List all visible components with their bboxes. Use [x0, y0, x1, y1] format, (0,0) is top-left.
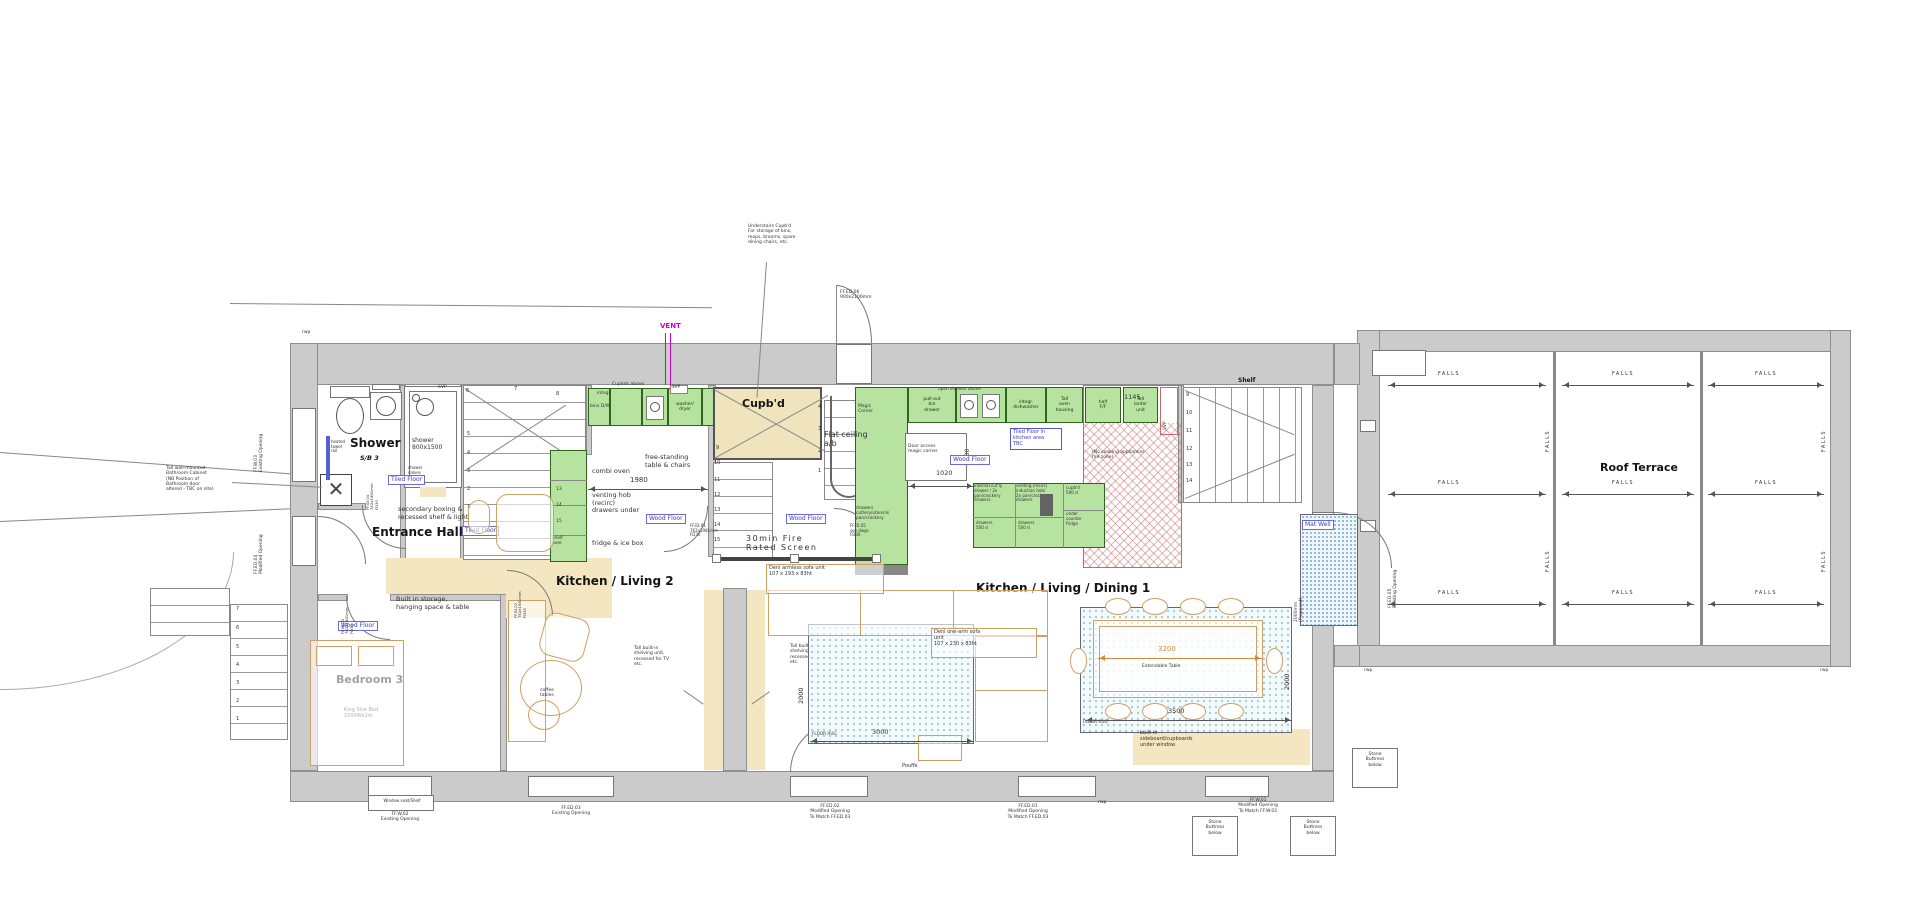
terrace-divider — [1553, 352, 1556, 645]
falls-label-vert: FALLS — [1546, 412, 1552, 452]
secondary-boxing-note: secondary boxing & recessed shelf & ligh… — [398, 506, 510, 521]
fridge-label: fridge & ice box — [592, 540, 643, 548]
tag-ffed04: FF.ED.04 Modified Opening — [254, 482, 265, 574]
stone-buttress-label: Stone Buttress below — [1354, 752, 1396, 768]
venting-hob-label: venting hob (recirc) drawers under — [592, 492, 676, 515]
tiled-floor-kitchen-badge: Tiled Floor in kitchen area TBC — [1010, 428, 1062, 450]
mirror — [372, 384, 400, 390]
stair-num: 6 — [236, 626, 239, 632]
induction-hob — [1040, 494, 1053, 516]
svp-label: SVP — [438, 385, 447, 390]
hall-storage — [386, 558, 506, 594]
stair-num: 2 — [236, 699, 239, 705]
stair-num: 8 — [556, 392, 559, 398]
garden-steps — [150, 588, 230, 636]
porch-line-top — [0, 452, 291, 474]
porch-line-bottom — [0, 508, 292, 522]
pouffe-label: Pouffe — [902, 764, 918, 770]
tag-ffed01: FF.ED.01 Modified Opening To Match FF.ED… — [982, 804, 1074, 820]
stair-num: 12 — [714, 493, 720, 499]
dim-1145: 1145 — [1124, 394, 1141, 402]
cab-kl2-tall — [702, 388, 714, 426]
dim-1020: 1020 — [936, 470, 953, 478]
falls-line — [1562, 494, 1694, 495]
integr-label: integr. — [597, 391, 611, 396]
magic-corner-label: Magic Corner — [858, 404, 888, 415]
wall-bed-right — [500, 594, 507, 771]
tag-ffed06: FF.ED.06 900x2100mm — [840, 290, 900, 301]
room-label-hall: Entrance Hall — [372, 525, 463, 539]
wall-tv-core — [723, 588, 747, 771]
tag-ffid02: FF.ID.02 762x1981mm FD30 — [514, 562, 527, 618]
terrace-post — [1360, 420, 1376, 432]
understairs-note: Understairs Cupb'd For storage of bins, … — [748, 224, 828, 245]
stair-num: 9 — [716, 446, 719, 452]
cab-dishwasher: integr. dishwasher — [1006, 387, 1046, 423]
stair-num: 6 — [466, 389, 469, 395]
island-cutlery-label: internal cut'ly drawer / 2x pan/crockery… — [974, 484, 1014, 503]
free-standing-label: free-standing table & chairs — [645, 454, 717, 469]
island-fridge-label: under counter fridge — [1066, 512, 1102, 526]
k1-sink-bowl — [986, 400, 996, 410]
wood-floor-badge: Wood Floor — [950, 455, 990, 465]
window-bottom-1 — [368, 776, 432, 797]
dining-chair — [1266, 648, 1283, 674]
flat-ceiling-label: Flat ceiling a/b — [824, 430, 884, 449]
dining-table-inner — [1099, 626, 1257, 692]
pillow — [316, 646, 352, 666]
shower-valves-label: shower valves — [408, 466, 440, 475]
screen-post — [712, 554, 721, 563]
wall-terrace-link-bottom — [1334, 645, 1360, 667]
rwp-label: rwp — [1098, 800, 1106, 805]
kl2-table — [496, 494, 554, 552]
sideboard-label: built-in sideboard/cupboards under windo… — [1140, 731, 1250, 749]
dim-line-3200 — [1098, 658, 1262, 659]
east-stair — [1183, 387, 1302, 503]
toilet-bowl — [336, 398, 364, 434]
falls-line — [1562, 604, 1694, 605]
stair-num: 4 — [467, 451, 470, 457]
dining-chair — [1105, 598, 1131, 615]
built-in-storage-note: Built in storage, hanging space & table — [396, 596, 508, 611]
island-cupbd-label: cupb'd 500 d — [1066, 486, 1102, 496]
shelf-label: Shelf — [1238, 377, 1255, 384]
basin-bowl — [376, 396, 396, 416]
tag-ffw03: FF.W.03 Existing Opening — [254, 380, 265, 472]
terrace-wall-left — [1357, 330, 1380, 667]
falls-label-vert: FALLS — [1546, 532, 1552, 572]
dim-1980: 1980 — [630, 476, 648, 484]
stair-num: 5 — [467, 432, 470, 438]
tag-ffw01: FF.W.01 Modified Opening To Match FF.W.0… — [1212, 798, 1304, 814]
window-seat-label: Window seat/Shelf — [372, 799, 432, 804]
dim-2000-proposed: 2000mm (Proposed) — [1294, 530, 1305, 622]
k1-sink-bowl — [964, 400, 974, 410]
drawers-cutlery-label: drawers cutlery/utensils pan/crockery — [856, 506, 906, 521]
door-leaf-ffed06 — [836, 285, 837, 343]
falls-label: FALLS — [1755, 372, 1777, 378]
svp-label: SVP — [672, 385, 680, 390]
one-arm-sofa-label: Deni one-arm sofa unit 107 x 230 x 83ht — [934, 630, 1034, 648]
room-label-shower: Shower — [350, 436, 401, 450]
room-label-cupbd: Cupb'd — [742, 398, 785, 411]
falls-label: FALLS — [1612, 372, 1634, 378]
dim-line-3500 — [1085, 720, 1292, 721]
door-ffed06-gap — [836, 344, 872, 384]
dim-3000: 3000 — [872, 729, 889, 737]
stair-num: 3 — [818, 427, 821, 433]
dining-chair — [1142, 598, 1168, 615]
dining-chair — [1218, 703, 1244, 720]
mat-well — [1300, 514, 1358, 626]
dim-line-1980 — [588, 489, 708, 490]
stone-buttress-label: Stone Buttress below — [1194, 820, 1236, 836]
vent-line — [670, 333, 671, 385]
bathroom-cabinet-symbol: ✕ — [320, 474, 352, 506]
window-ffw03 — [292, 408, 316, 482]
stair-num: 5 — [236, 645, 239, 651]
tag-ffid05: FF.ID.05 see dwgs FD30 — [850, 524, 896, 538]
rwp-label: rwp — [1364, 668, 1372, 673]
stair-num: 2 — [818, 449, 821, 455]
wood-floor-badge: Wood Floor — [646, 514, 686, 524]
stone-buttress-label: Stone Buttress below — [1292, 820, 1334, 836]
tag-ffed02: FF.ED.02 Modified Opening To Match FF.ED… — [784, 804, 876, 820]
dim-2000-living: 2000 — [798, 660, 806, 704]
terrace-rooflight — [1372, 350, 1426, 376]
floor-plan-canvas: 7654321678543214321910111213141591011121… — [0, 0, 1920, 916]
fire-screen-label: 30min Fire Rated Screen — [746, 534, 856, 553]
falls-label-vert: FALLS — [1822, 532, 1828, 572]
floor-rug-label: FLOOR RUG — [812, 732, 837, 737]
towel-rail — [326, 436, 330, 480]
stair-num: 1 — [818, 469, 821, 475]
tag-ffid01: FF.ID.01 762x1981mm FD30 — [690, 524, 742, 538]
rwp-label: rwp — [302, 330, 310, 335]
island-divider — [973, 517, 1063, 518]
wall-top — [290, 343, 1334, 385]
shower-valve — [412, 394, 420, 402]
falls-label: FALLS — [1755, 481, 1777, 487]
cab-pullout-bin: pull-out bin drawer — [908, 387, 956, 423]
dim-2000-dining: 2000 — [1284, 646, 1292, 690]
stair-num: 11 — [714, 478, 720, 484]
stair-num: 2 — [467, 487, 470, 493]
mat-well-badge: Mat Well — [1302, 520, 1334, 530]
falls-label: FALLS — [1438, 591, 1460, 597]
tv-shelving-note: Tall built-in shelving unit, recessed fo… — [634, 646, 688, 667]
tag-ffed03: FF.ED.03 Existing Opening — [526, 806, 616, 817]
terrace-interior — [1380, 352, 1830, 645]
falls-line — [1708, 494, 1824, 495]
falls-line — [1708, 385, 1824, 386]
stair-num: 12 — [1186, 447, 1192, 453]
stair-num: 14 — [556, 503, 562, 508]
stair-num: 14 — [1186, 479, 1192, 485]
terrace-divider — [1700, 352, 1703, 645]
falls-label: FALLS — [1612, 481, 1634, 487]
island-hob-label: venting (recirc) induction hob/ 2x pan/c… — [1016, 484, 1062, 503]
tiled-floor-badge: Tiled Floor — [388, 475, 425, 485]
falls-label: FALLS — [1755, 591, 1777, 597]
coffee-table — [528, 700, 560, 730]
stair-num: 13 — [1186, 463, 1192, 469]
terrace-wall-right — [1830, 330, 1851, 667]
open-shelves-label: open shelves above — [938, 387, 981, 392]
stair-num: 15 — [556, 519, 562, 524]
stair-num: 3 — [236, 681, 239, 687]
door-bottom-ffed01 — [1018, 776, 1096, 797]
dim-line-1020 — [908, 486, 974, 487]
stair-num: 7 — [514, 387, 517, 393]
dim-line-3000 — [810, 741, 974, 742]
island-drawers-label: drawers 500 d — [1018, 521, 1060, 531]
kl2-chair — [468, 500, 490, 534]
room-label-terrace: Roof Terrace — [1600, 462, 1678, 475]
dining-chair — [1105, 703, 1131, 720]
tag-ffid03: FF.ID.03 762x1981mm FD30 — [341, 578, 354, 634]
cab-oven-housing: Tall oven housing — [1046, 387, 1083, 423]
pillow — [358, 646, 394, 666]
toilet-cistern — [330, 386, 370, 398]
stair-num: 4 — [236, 663, 239, 669]
falls-label: FALLS — [1438, 481, 1460, 487]
room-label-kl2: Kitchen / Living 2 — [556, 574, 674, 588]
opening-ffed04 — [292, 516, 316, 566]
stair-num: 4 — [818, 405, 821, 411]
window-bottom-ffw01 — [1205, 776, 1269, 797]
stair-num: 10 — [1186, 411, 1192, 417]
extendable-table-label: Extendable Table — [1142, 664, 1180, 669]
stair-num: 9 — [1186, 393, 1189, 399]
dining-chair — [1070, 648, 1087, 674]
shower-sill — [420, 487, 446, 497]
stair-num: 13 — [556, 487, 562, 492]
roof-line — [230, 303, 712, 308]
dining-chair — [1142, 703, 1168, 720]
cupbds-above-label: Cupbds above — [612, 382, 644, 387]
falls-line — [1388, 385, 1546, 386]
cab-kl2-integr — [610, 388, 642, 426]
terrace-wall-bottom — [1357, 645, 1851, 667]
screen-post — [872, 554, 881, 563]
stair-num: 7 — [236, 607, 239, 613]
sofa-divider — [976, 690, 1047, 691]
falls-label: FALLS — [1612, 591, 1634, 597]
island-drawers-label: drawers 500 d — [976, 521, 1012, 531]
kl2-sink-bowl — [650, 402, 660, 412]
stair-num: 3 — [467, 469, 470, 475]
fire-zone-label: (No cooking appliances fire zone) — [1092, 450, 1178, 461]
shower-size-label: shower 800x1500 — [412, 437, 460, 451]
cab-divider — [550, 480, 587, 481]
wall-terrace-link-top — [1334, 343, 1360, 385]
door-bottom-ffed02 — [790, 776, 868, 797]
armless-sofa-label: Deni armless sofa unit 107 x 193 x 83ht — [769, 566, 881, 578]
window-bottom-2 — [528, 776, 614, 797]
tag-ffid04: FF.ID.04 762x1981mm FD30 — [366, 454, 379, 510]
stair-num: 1 — [236, 717, 239, 723]
wood-floor-badge: Wood Floor — [786, 514, 826, 524]
coffee-tables-label: coffee tables — [540, 688, 570, 699]
tv-shelving-right — [747, 590, 765, 770]
island-divider — [1063, 483, 1064, 548]
pouffe — [918, 735, 962, 761]
falls-label: FALLS — [1438, 372, 1460, 378]
falls-label-vert: FALLS — [1822, 412, 1828, 452]
tag-ffw02: FF.W.02 Existing Opening — [356, 812, 444, 823]
dim-3200: 3200 — [1158, 645, 1176, 653]
rwp-label: rwp — [1820, 668, 1828, 673]
falls-line — [1562, 385, 1694, 386]
screen-post — [790, 554, 799, 563]
door-access-label: Door access magic corner — [908, 444, 964, 455]
dining-chair — [1180, 598, 1206, 615]
tag-ffed05: FF.ED.05 Existing Opening — [1388, 513, 1399, 608]
terrace-wall-top — [1357, 330, 1851, 352]
tv-shelving-left — [704, 590, 723, 770]
sofa-divider — [860, 591, 861, 635]
dining-chair — [1218, 598, 1244, 615]
stair-num: 15 — [714, 538, 720, 544]
stair-num: 13 — [714, 508, 720, 514]
bins-dw-label: bins D/W — [590, 404, 610, 409]
bathroom-cabinet-note: Tall wall-mounted Bathroom Cabinet (NB P… — [166, 466, 232, 492]
combi-oven-label: combi oven — [592, 468, 630, 476]
stair-num: 11 — [1186, 429, 1192, 435]
falls-line — [1388, 494, 1546, 495]
falls-line — [1388, 604, 1546, 605]
vent-line — [665, 333, 666, 385]
vent-label: VENT — [660, 322, 681, 330]
falls-line — [1708, 604, 1824, 605]
dim-3500: 3500 — [1168, 708, 1185, 716]
